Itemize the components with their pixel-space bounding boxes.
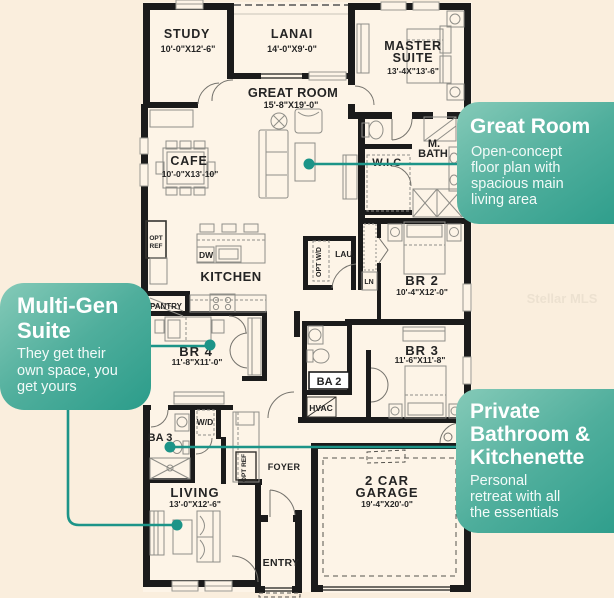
svg-text:LAU.: LAU. (335, 249, 355, 259)
svg-text:BATH: BATH (418, 148, 448, 160)
svg-text:W/D: W/D (197, 417, 214, 427)
svg-text:KITCHEN: KITCHEN (200, 269, 261, 284)
svg-text:LANAI: LANAI (271, 27, 313, 41)
svg-text:floor plan with: floor plan with (471, 160, 560, 176)
svg-text:10'-0"X12'-6": 10'-0"X12'-6" (161, 44, 216, 54)
svg-text:LIVING: LIVING (170, 485, 219, 500)
svg-text:own space, you: own space, you (17, 363, 118, 379)
svg-text:STUDY: STUDY (164, 27, 210, 41)
svg-text:Kitchenette: Kitchenette (470, 446, 584, 469)
svg-text:15'-8"X19'-0": 15'-8"X19'-0" (264, 100, 319, 110)
svg-text:OPT REF: OPT REF (241, 454, 248, 482)
svg-text:BR 2: BR 2 (405, 273, 439, 288)
svg-text:OPT W/D: OPT W/D (316, 247, 323, 277)
svg-text:11'-8"X11'-0": 11'-8"X11'-0" (172, 357, 223, 367)
svg-text:Suite: Suite (17, 318, 71, 343)
svg-text:OPT: OPT (149, 235, 162, 242)
svg-text:GARAGE: GARAGE (355, 485, 418, 500)
svg-text:HVAC: HVAC (309, 403, 332, 413)
svg-text:DW: DW (199, 250, 214, 260)
svg-text:Stellar MLS: Stellar MLS (527, 291, 598, 306)
svg-text:spacious main: spacious main (471, 176, 564, 192)
svg-text:the essentials: the essentials (470, 505, 559, 521)
svg-text:Multi-Gen: Multi-Gen (17, 293, 118, 318)
svg-text:living area: living area (471, 192, 538, 208)
svg-text:13'-0"X12'-6": 13'-0"X12'-6" (169, 499, 221, 509)
svg-text:PANTRY: PANTRY (150, 302, 183, 311)
svg-text:19'-4"X20'-0": 19'-4"X20'-0" (361, 499, 413, 509)
svg-text:retreat with all: retreat with all (470, 489, 560, 505)
svg-text:FOYER: FOYER (268, 462, 301, 472)
svg-text:CAFE: CAFE (170, 154, 207, 168)
svg-text:10'-0"X13'-10": 10'-0"X13'-10" (162, 169, 219, 179)
svg-text:Great Room: Great Room (470, 115, 590, 138)
svg-text:get yours: get yours (17, 379, 77, 395)
svg-text:GREAT ROOM: GREAT ROOM (248, 85, 338, 100)
svg-text:SUITE: SUITE (393, 51, 434, 65)
svg-text:BA 2: BA 2 (317, 376, 342, 388)
svg-text:ENTRY: ENTRY (263, 557, 300, 569)
svg-text:10'-4"X12'-0": 10'-4"X12'-0" (396, 287, 448, 297)
svg-text:REF: REF (150, 243, 163, 250)
svg-text:11'-6"X11'-8": 11'-6"X11'-8" (395, 355, 446, 365)
svg-text:14'-0"X9'-0": 14'-0"X9'-0" (267, 44, 317, 54)
svg-text:Bathroom &: Bathroom & (470, 423, 590, 446)
svg-text:Private: Private (470, 400, 540, 423)
svg-text:Personal: Personal (470, 473, 527, 489)
svg-text:Open-concept: Open-concept (471, 144, 562, 160)
svg-text:13'-4X"13'-6": 13'-4X"13'-6" (387, 66, 439, 76)
svg-text:LN: LN (364, 279, 373, 286)
svg-text:They get their: They get their (17, 346, 106, 362)
